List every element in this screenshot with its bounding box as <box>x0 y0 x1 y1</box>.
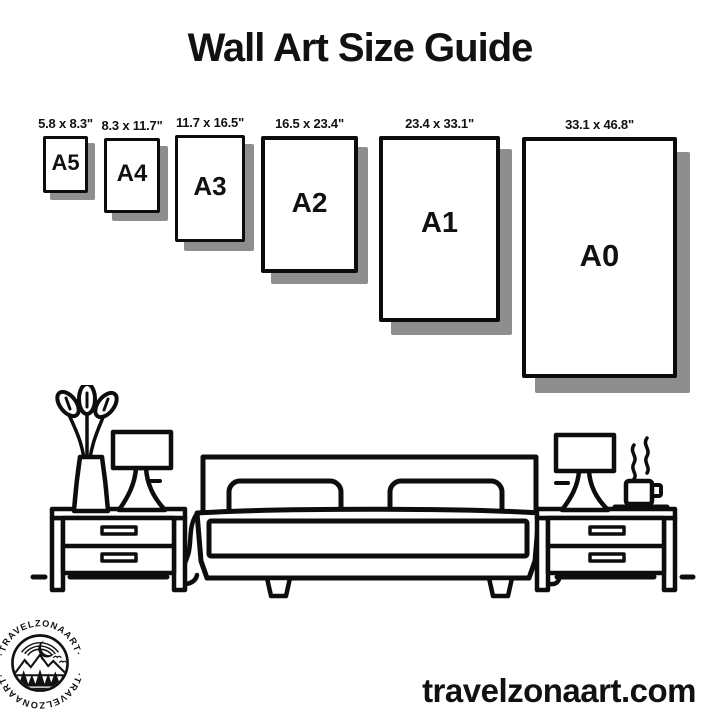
page-title: Wall Art Size Guide <box>0 26 720 71</box>
size-dimensions-a2: 16.5 x 23.4" <box>275 116 344 131</box>
website-url: travelzonaart.com <box>422 672 696 710</box>
size-label-a3: A3 <box>193 171 226 202</box>
size-label-a1: A1 <box>421 207 458 240</box>
paper-a1: A1 <box>379 136 500 322</box>
bedroom-illustration <box>0 385 720 600</box>
size-dimensions-a1: 23.4 x 33.1" <box>405 116 474 131</box>
size-frame-a5: 5.8 x 8.3" A5 <box>43 136 88 193</box>
size-frame-a0: 33.1 x 46.8" A0 <box>522 137 677 378</box>
size-dimensions-a3: 11.7 x 16.5" <box>176 115 244 130</box>
size-frame-a2: 16.5 x 23.4" A2 <box>261 136 358 273</box>
size-label-a2: A2 <box>292 187 328 219</box>
brand-logo: ·TRAVELZONAART· ·TRAVELZONAART· <box>0 610 91 712</box>
double-bed-icon <box>177 457 559 596</box>
size-dimensions-a0: 33.1 x 46.8" <box>565 117 634 132</box>
size-frame-a4: 8.3 x 11.7" A4 <box>104 138 160 213</box>
paper-a3: A3 <box>175 135 245 242</box>
table-lamp-left-icon <box>113 432 171 510</box>
paper-a4: A4 <box>104 138 160 213</box>
size-label-a5: A5 <box>51 150 79 176</box>
size-dimensions-a4: 8.3 x 11.7" <box>101 118 162 133</box>
size-frame-a1: 23.4 x 33.1" A1 <box>379 136 500 322</box>
table-lamp-right-icon <box>556 435 614 510</box>
size-label-a4: A4 <box>117 160 148 188</box>
plant-vase-icon <box>53 385 121 511</box>
size-label-a0: A0 <box>580 238 620 274</box>
coffee-cup-icon <box>615 438 667 507</box>
paper-a2: A2 <box>261 136 358 273</box>
paper-a5: A5 <box>43 136 88 193</box>
size-dimensions-a5: 5.8 x 8.3" <box>38 116 93 131</box>
paper-a0: A0 <box>522 137 677 378</box>
size-frame-a3: 11.7 x 16.5" A3 <box>175 135 245 242</box>
